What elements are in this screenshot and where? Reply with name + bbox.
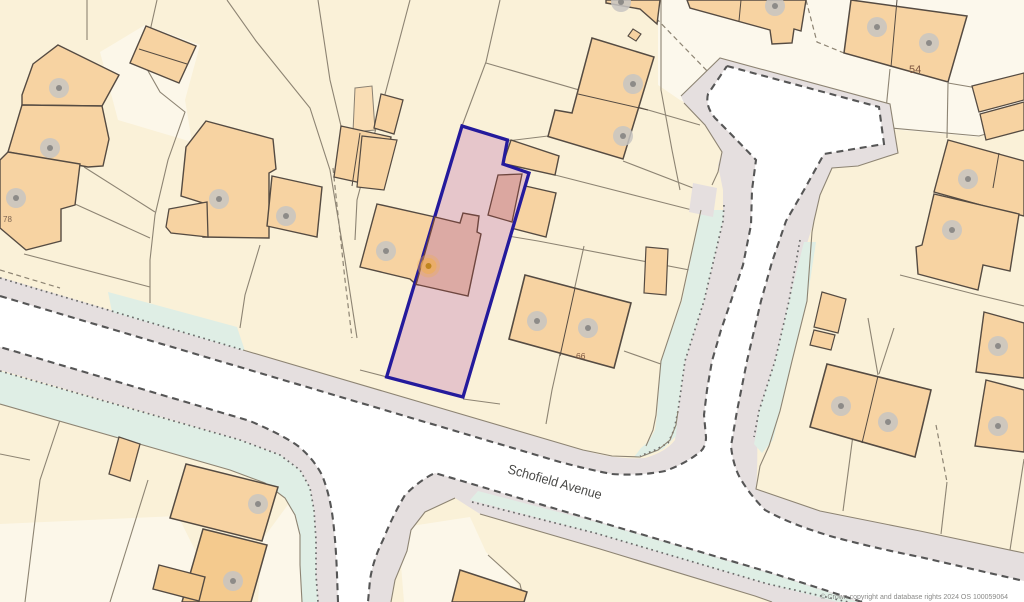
svg-text:© Crown copyright and database: © Crown copyright and database rights 20… (820, 593, 1008, 601)
svg-text:66: 66 (576, 351, 586, 361)
svg-text:78: 78 (3, 215, 12, 224)
svg-text:54: 54 (909, 64, 921, 76)
